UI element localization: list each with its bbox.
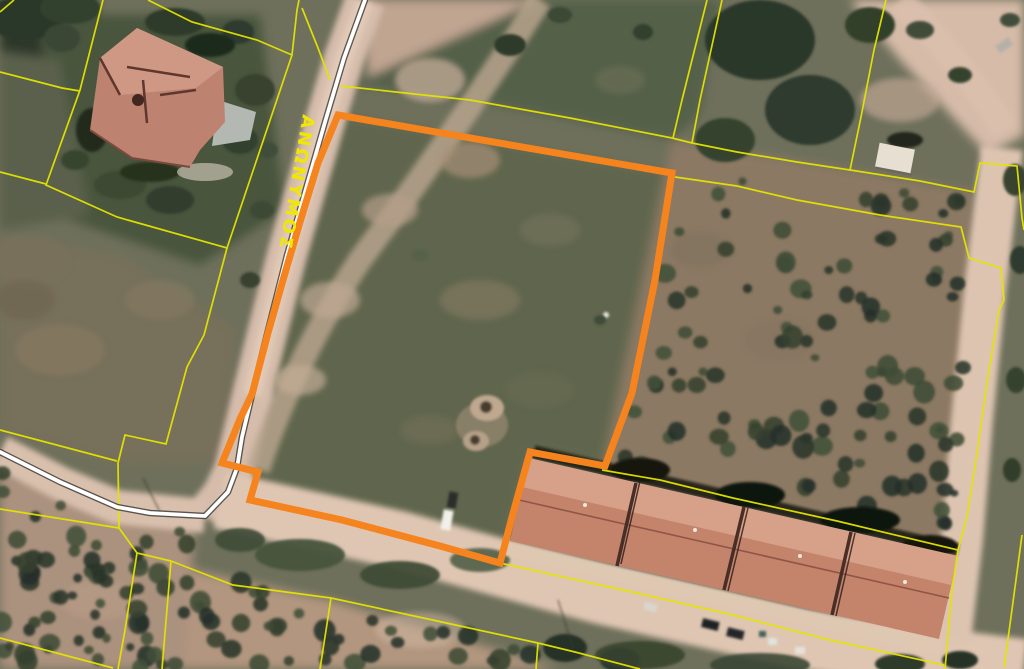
bin [759,631,766,637]
satellite-map: ΑΝΩΝΥΜΟΣ [0,0,1024,669]
bin [768,638,777,645]
bin [795,647,805,654]
satellite-basemap [0,0,1024,669]
map-viewport[interactable]: ΑΝΩΝΥΜΟΣ [0,0,1024,669]
